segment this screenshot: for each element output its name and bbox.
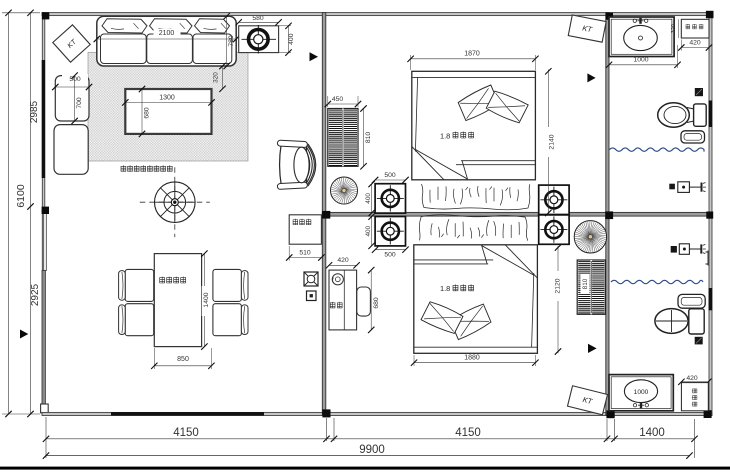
svg-text:680: 680 bbox=[373, 297, 380, 309]
svg-text:1000: 1000 bbox=[634, 389, 649, 396]
svg-text:2985: 2985 bbox=[29, 100, 40, 123]
svg-text:1000: 1000 bbox=[633, 57, 648, 64]
svg-text:1.8: 1.8 bbox=[440, 131, 450, 140]
svg-text:400: 400 bbox=[365, 225, 372, 236]
svg-text:1870: 1870 bbox=[464, 51, 480, 58]
svg-text:4150: 4150 bbox=[173, 427, 199, 439]
svg-text:320: 320 bbox=[671, 24, 677, 33]
svg-text:9900: 9900 bbox=[359, 444, 385, 456]
svg-text:810: 810 bbox=[582, 278, 589, 289]
svg-text:420: 420 bbox=[686, 375, 698, 382]
svg-text:2100: 2100 bbox=[159, 30, 175, 37]
svg-text:810: 810 bbox=[365, 132, 372, 144]
svg-text:1880: 1880 bbox=[464, 355, 480, 362]
svg-text:580: 580 bbox=[252, 15, 264, 22]
svg-text:6100: 6100 bbox=[15, 184, 27, 208]
svg-text:2120: 2120 bbox=[554, 278, 561, 293]
svg-text:450: 450 bbox=[332, 96, 344, 103]
svg-text:2140: 2140 bbox=[548, 134, 555, 149]
svg-text:420: 420 bbox=[689, 40, 701, 47]
svg-text:1400: 1400 bbox=[203, 292, 210, 307]
svg-text:4150: 4150 bbox=[455, 427, 481, 439]
svg-text:1.8: 1.8 bbox=[440, 284, 450, 293]
svg-text:500: 500 bbox=[384, 172, 396, 179]
svg-text:700: 700 bbox=[76, 97, 83, 109]
svg-text:400: 400 bbox=[288, 33, 295, 45]
svg-text:400: 400 bbox=[365, 193, 372, 204]
svg-text:1300: 1300 bbox=[159, 94, 175, 101]
svg-text:320: 320 bbox=[213, 72, 220, 83]
svg-text:420: 420 bbox=[337, 257, 349, 264]
svg-text:850: 850 bbox=[177, 356, 189, 363]
svg-text:510: 510 bbox=[299, 250, 311, 257]
svg-text:780: 780 bbox=[228, 35, 235, 47]
svg-text:1400: 1400 bbox=[639, 427, 665, 439]
svg-text:680: 680 bbox=[144, 107, 151, 119]
svg-text:500: 500 bbox=[69, 76, 81, 83]
svg-text:2925: 2925 bbox=[30, 283, 41, 306]
svg-text:500: 500 bbox=[384, 252, 396, 259]
